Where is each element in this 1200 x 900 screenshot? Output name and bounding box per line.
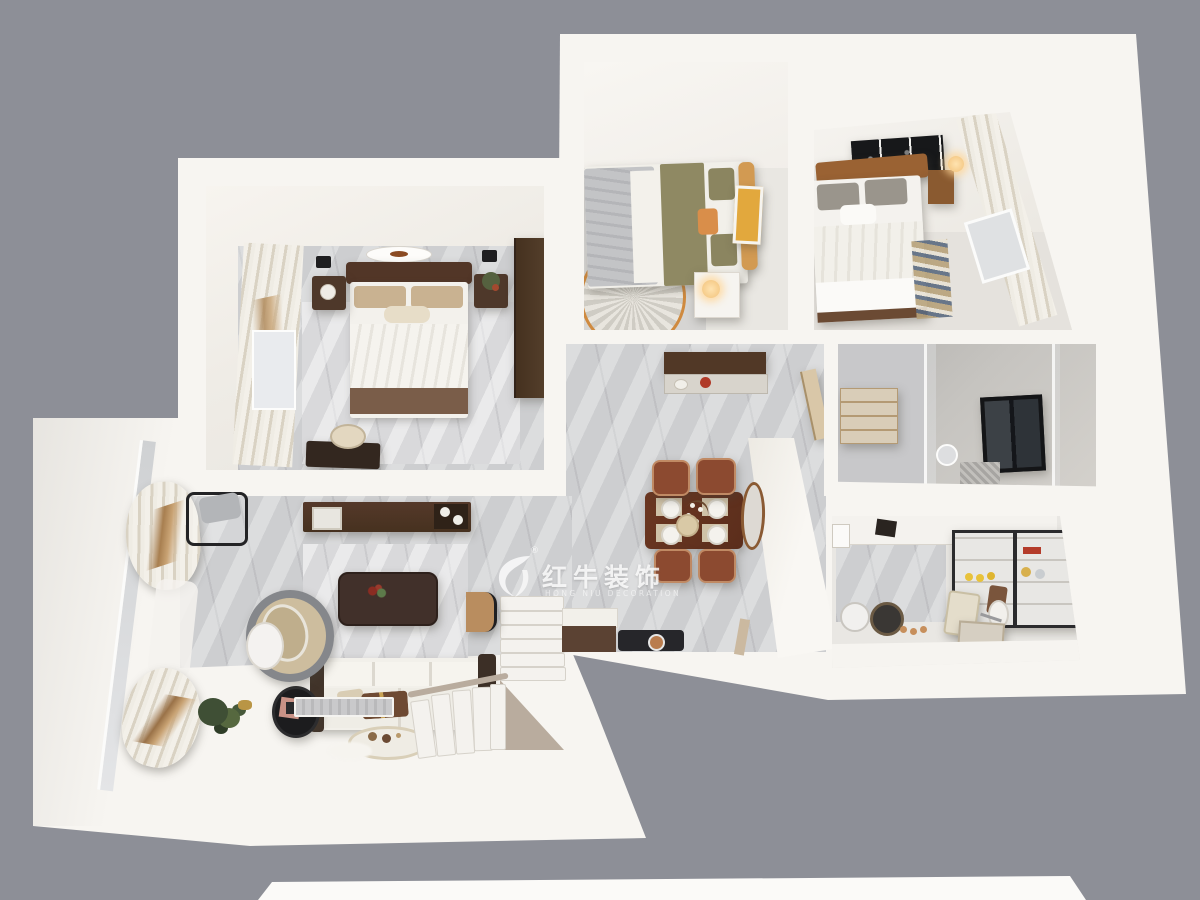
stair-wall-table: [466, 592, 497, 632]
island-front: [562, 626, 616, 652]
pillow-gray: [864, 178, 907, 206]
plate: [661, 499, 681, 519]
wall-lamp-left: [316, 256, 331, 268]
vanity-chair: [330, 424, 366, 449]
sheepskin-throw: [328, 742, 372, 760]
copper-pot: [648, 634, 665, 651]
bed3: [810, 175, 927, 323]
kettle-white: [840, 602, 870, 632]
red-package: [1023, 547, 1041, 554]
long-tray: [294, 697, 394, 717]
bed2: [584, 161, 748, 289]
console-bowl: [674, 379, 688, 390]
control-panel: [832, 524, 850, 548]
floorplan-render: ® 红牛装饰 HONG NIU DECORATION: [0, 0, 1200, 900]
plant-red-bloom: [492, 284, 499, 291]
dining-chair: [652, 460, 690, 496]
ceiling-light-center: [390, 251, 408, 257]
stair-tread: [500, 653, 565, 667]
stair-tread: [500, 667, 566, 681]
lamp-glow: [702, 280, 720, 298]
kitchen: [832, 516, 1080, 668]
bath-drain-mat: [960, 462, 1000, 484]
bath-shelf-cabinet: [840, 388, 898, 444]
bedroom-2: [584, 62, 788, 330]
master-window: [252, 330, 296, 410]
duvet: [350, 324, 468, 390]
shower-head: [936, 444, 958, 466]
pillow-white: [840, 204, 877, 226]
pillow: [708, 168, 735, 201]
center-tray: [676, 514, 699, 537]
master-bedroom: [206, 186, 544, 470]
nightstand-tray: [320, 284, 336, 300]
centerpiece-blossoms: [690, 503, 695, 508]
next-floor-strip: [258, 876, 1086, 900]
pillow: [354, 286, 406, 308]
console-dishes: [440, 507, 450, 517]
foot-throw: [350, 388, 468, 414]
plate: [707, 525, 727, 545]
curtain-tie-lower: [126, 689, 198, 751]
duvet-white: [813, 221, 926, 285]
accent-pillow: [384, 306, 430, 323]
stair-tread-curve: [490, 684, 506, 750]
master-bed-headboard: [346, 262, 472, 284]
wardrobe: [514, 238, 544, 398]
dining-chair: [698, 549, 736, 583]
pillow-orange: [697, 208, 718, 235]
stair-tread: [500, 611, 564, 625]
coffee-table: [338, 572, 438, 626]
shower-glass: [1052, 344, 1060, 488]
lemons: [965, 573, 973, 581]
bedroom3-rug: [911, 239, 952, 319]
console-art-tray: [312, 507, 342, 530]
artwork-yellow: [733, 185, 764, 244]
plate: [707, 499, 727, 519]
wall-lamp-right: [482, 250, 497, 262]
eggs: [900, 626, 907, 633]
brass-watering-can: [238, 700, 252, 710]
console-compartment: [434, 504, 468, 529]
bull-swoosh-logo: [498, 554, 540, 604]
console-flowers: [700, 377, 711, 388]
dining-chair: [696, 458, 736, 495]
white-side-table: [246, 622, 284, 670]
nightstand3: [928, 170, 954, 204]
cooker-dark: [870, 602, 904, 636]
knife-block: [875, 519, 897, 538]
stair-tread: [500, 625, 564, 639]
hall-bath-wall: [824, 340, 838, 496]
watermark: ® 红牛装饰 HONG NIU DECORATION: [498, 548, 668, 608]
island-counter: [562, 608, 618, 628]
floor-plant: [198, 698, 228, 726]
entry-console: [664, 352, 766, 374]
master-bed: [350, 282, 468, 418]
bathroom: [836, 344, 1096, 488]
shower-glass: [924, 344, 936, 488]
pillow: [411, 286, 463, 308]
watermark-subtext: HONG NIU DECORATION: [545, 589, 681, 598]
fridge-items: [1021, 567, 1031, 577]
stair-tread: [500, 639, 565, 653]
coffee-table-flowers: [362, 582, 392, 602]
lamp-glow: [948, 156, 964, 172]
bath-kitchen-wall: [830, 482, 1097, 519]
rug-scatter-items: [368, 732, 377, 741]
